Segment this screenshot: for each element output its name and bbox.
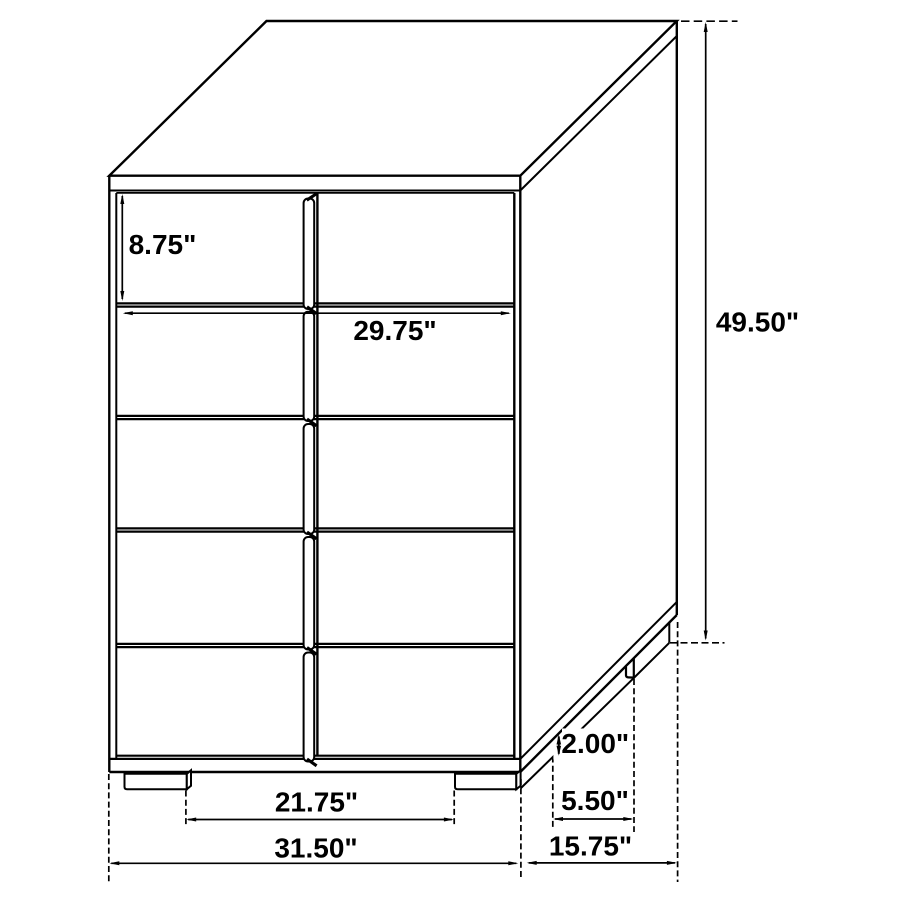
svg-text:31.50": 31.50": [274, 832, 357, 863]
svg-text:5.50": 5.50": [561, 785, 629, 816]
svg-text:8.75": 8.75": [129, 229, 197, 260]
svg-text:49.50": 49.50": [716, 306, 799, 337]
svg-text:2.00": 2.00": [561, 728, 629, 759]
svg-text:29.75": 29.75": [353, 315, 436, 346]
svg-text:21.75": 21.75": [275, 786, 358, 817]
svg-text:15.75": 15.75": [549, 831, 632, 862]
